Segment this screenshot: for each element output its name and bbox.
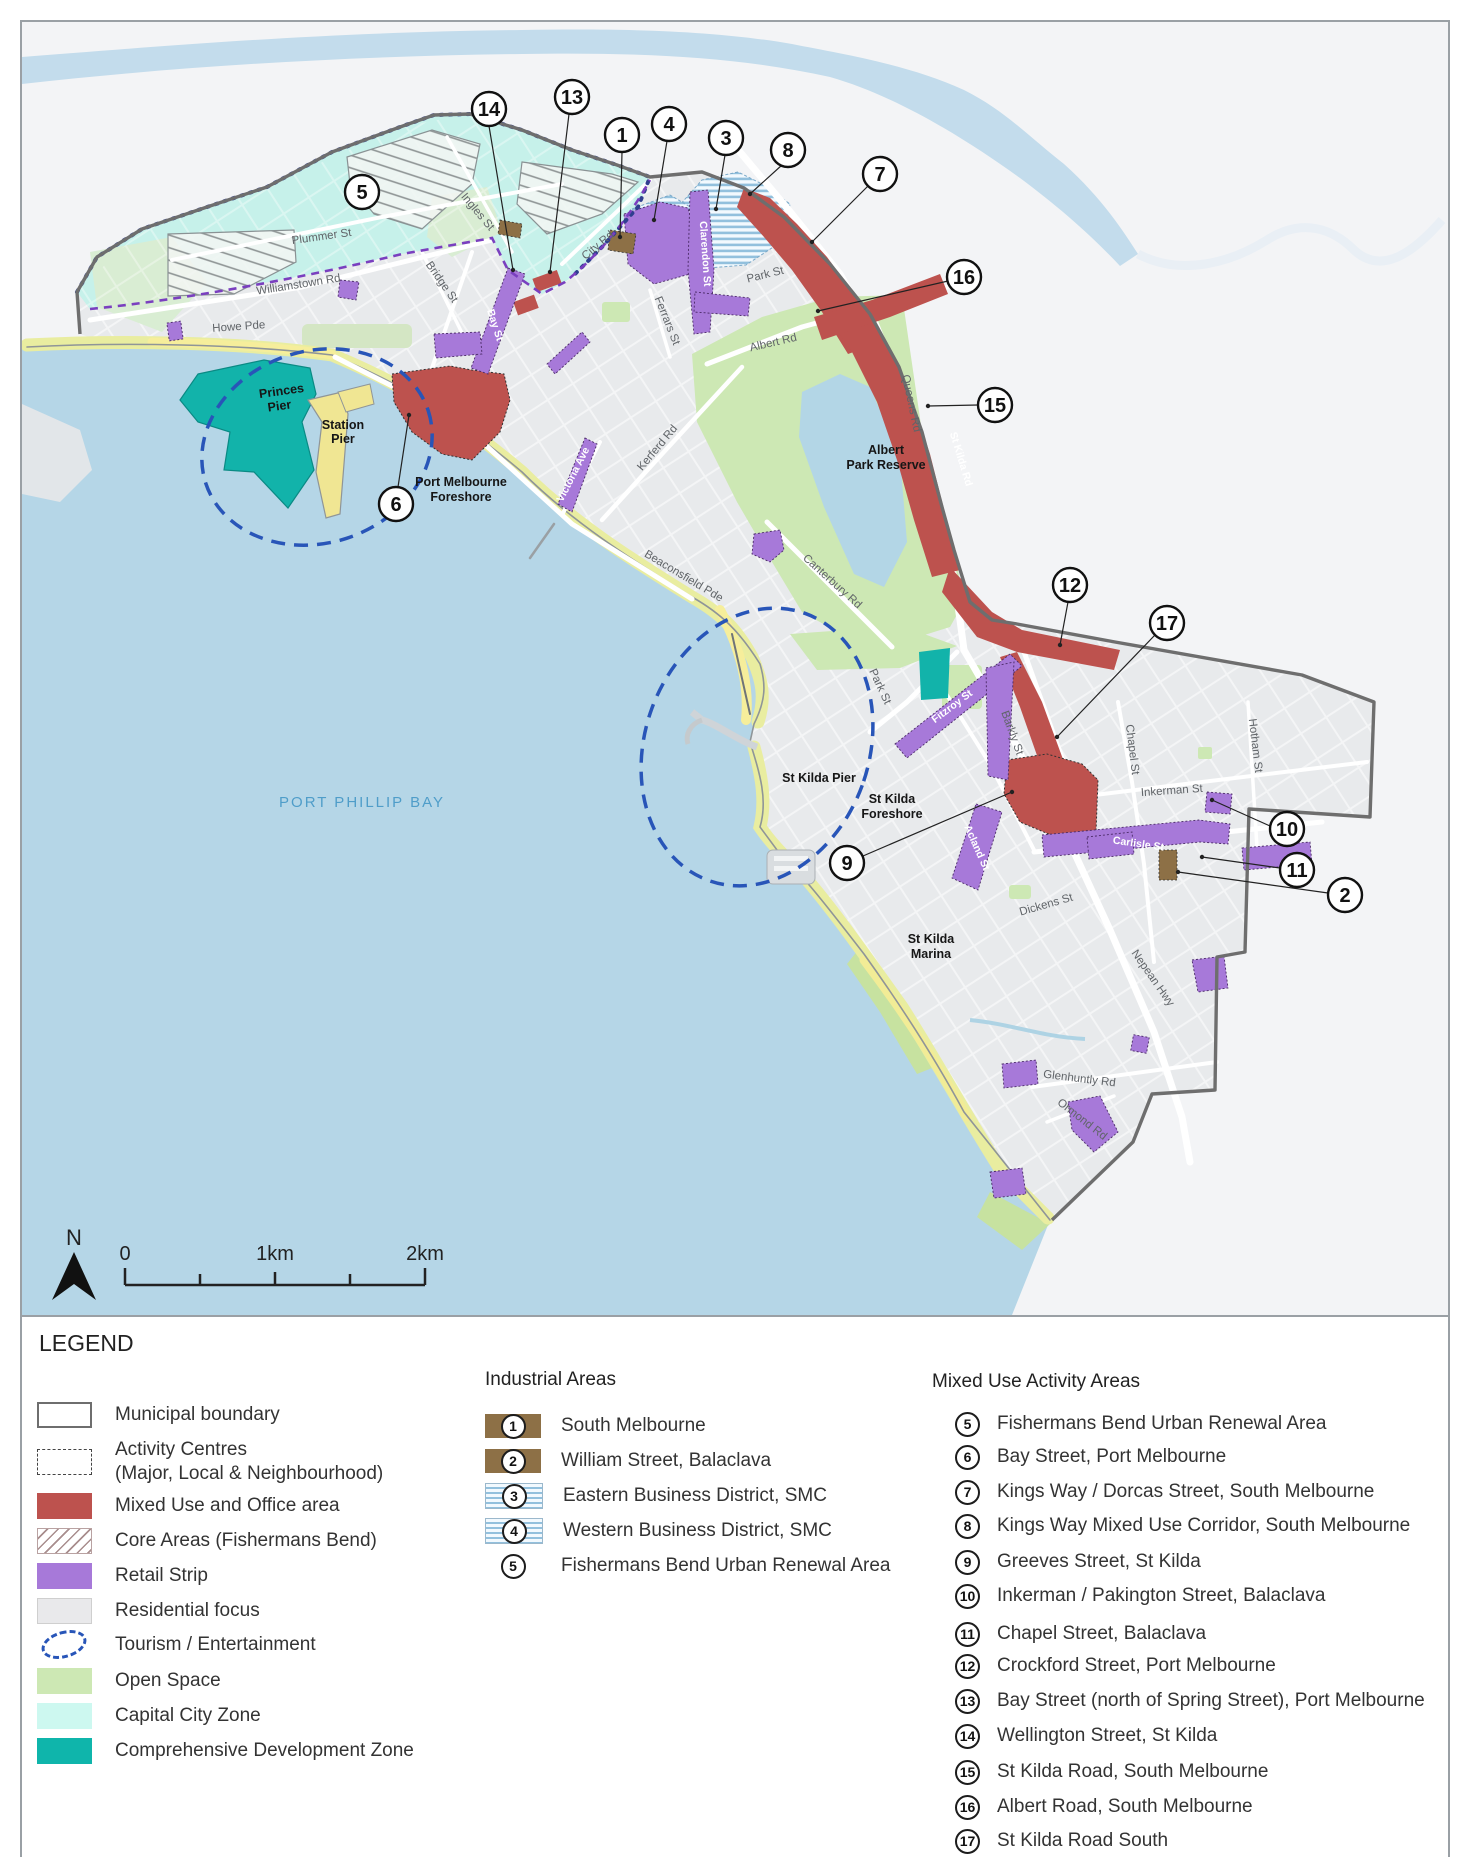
number-circle: 13 xyxy=(955,1689,980,1714)
svg-text:0: 0 xyxy=(119,1243,130,1265)
mixed-item-9: 9Greeves Street, St Kilda xyxy=(955,1549,1201,1575)
st-kilda-marina-structure xyxy=(767,850,815,884)
svg-text:5: 5 xyxy=(356,182,367,204)
mixed-item-11: 11Chapel Street, Balaclava xyxy=(955,1621,1206,1647)
svg-text:1km: 1km xyxy=(256,1243,294,1265)
callout-5: 5 xyxy=(345,175,379,209)
number-circle: 8 xyxy=(955,1514,980,1539)
number-circle: 14 xyxy=(955,1724,980,1749)
mixed-item-10: 10Inkerman / Pakington Street, Balaclava xyxy=(955,1583,1325,1609)
capital-city-swatch xyxy=(37,1703,92,1729)
svg-text:Park Reserve: Park Reserve xyxy=(846,458,925,472)
number-circle: 15 xyxy=(955,1760,980,1785)
number-circle: 2 xyxy=(501,1449,526,1474)
industrial-areas-title: Industrial Areas xyxy=(485,1369,616,1391)
svg-text:15: 15 xyxy=(984,395,1006,417)
legend-item-municipal-boundary: Municipal boundary xyxy=(37,1402,280,1428)
industrial-item-5: 5Fishermans Bend Urban Renewal Area xyxy=(485,1553,891,1579)
retail-strip-swatch xyxy=(37,1563,92,1589)
industrial-item-1: 1South Melbourne xyxy=(485,1413,706,1439)
legend: LEGEND Municipal boundary Activity Centr… xyxy=(22,1317,1448,1857)
label-st-kilda-marina: St Kilda Marina xyxy=(908,932,956,961)
legend-item-residential-focus: Residential focus xyxy=(37,1598,260,1624)
svg-text:N: N xyxy=(66,1225,82,1250)
industrial-swatch-brown: 1 xyxy=(485,1414,541,1438)
map-area: Plummer St Ingles St Bridge St Williamst… xyxy=(22,22,1448,1317)
comp-dev-st-kilda-triangle xyxy=(919,648,950,700)
mixed-item-5: 5Fishermans Bend Urban Renewal Area xyxy=(955,1411,1327,1437)
svg-text:Port Melbourne: Port Melbourne xyxy=(415,475,507,489)
number-circle: 3 xyxy=(502,1484,527,1509)
svg-text:14: 14 xyxy=(478,99,501,121)
tourism-swatch xyxy=(38,1625,90,1664)
svg-text:11: 11 xyxy=(1286,860,1307,882)
industrial-item-3: 3Eastern Business District, SMC xyxy=(485,1483,827,1509)
number-circle: 12 xyxy=(955,1654,980,1679)
number-circle: 10 xyxy=(955,1584,980,1609)
mixed-item-8: 8Kings Way Mixed Use Corridor, South Mel… xyxy=(955,1513,1410,1539)
legend-item-core-areas: Core Areas (Fishermans Bend) xyxy=(37,1528,377,1554)
number-circle: 6 xyxy=(955,1445,980,1470)
svg-text:3: 3 xyxy=(720,128,731,150)
svg-text:6: 6 xyxy=(390,494,401,516)
industrial-item-2: 2William Street, Balaclava xyxy=(485,1448,771,1474)
industrial-william-st-balaclava xyxy=(1159,850,1177,880)
legend-item-open-space: Open Space xyxy=(37,1668,221,1694)
mixed-item-12: 12Crockford Street, Port Melbourne xyxy=(955,1653,1276,1679)
svg-text:10: 10 xyxy=(1276,819,1298,841)
legend-item-tourism: Tourism / Entertainment xyxy=(37,1631,316,1658)
core-areas-swatch xyxy=(37,1528,92,1554)
open-space-swatch xyxy=(37,1668,92,1694)
svg-text:Foreshore: Foreshore xyxy=(861,807,922,821)
svg-text:9: 9 xyxy=(841,853,852,875)
svg-text:8: 8 xyxy=(782,140,793,162)
mixed-item-7: 7Kings Way / Dorcas Street, South Melbou… xyxy=(955,1479,1374,1505)
number-circle: 1 xyxy=(501,1414,526,1439)
legend-item-mixed-use: Mixed Use and Office area xyxy=(37,1493,340,1519)
comprehensive-dev-swatch xyxy=(37,1738,92,1764)
svg-text:2: 2 xyxy=(1339,885,1350,907)
mixed-item-16: 16Albert Road, South Melbourne xyxy=(955,1794,1253,1820)
svg-text:13: 13 xyxy=(561,87,583,109)
mixed-use-areas-title: Mixed Use Activity Areas xyxy=(932,1371,1140,1393)
mixed-item-6: 6Bay Street, Port Melbourne xyxy=(955,1444,1226,1470)
label-st-kilda-foreshore: St Kilda Foreshore xyxy=(861,792,922,821)
mixed-item-13: 13Bay Street (north of Spring Street), P… xyxy=(955,1688,1425,1714)
legend-title: LEGEND xyxy=(39,1330,134,1357)
number-circle: 9 xyxy=(955,1550,980,1575)
legend-item-comprehensive-dev: Comprehensive Development Zone xyxy=(37,1738,414,1764)
label-port-phillip-bay: PORT PHILLIP BAY xyxy=(279,794,445,811)
legend-item-capital-city-zone: Capital City Zone xyxy=(37,1703,261,1729)
mixed-item-17: 17St Kilda Road South xyxy=(955,1828,1168,1854)
number-circle: 5 xyxy=(955,1412,980,1437)
retail-glenhuntly-rd xyxy=(1002,1060,1038,1088)
residential-swatch xyxy=(37,1598,92,1624)
activity-centres-swatch xyxy=(37,1449,92,1475)
svg-text:7: 7 xyxy=(874,164,885,186)
map-canvas: Plummer St Ingles St Bridge St Williamst… xyxy=(22,22,1448,1315)
number-circle: 7 xyxy=(955,1480,980,1505)
mixed-use-swatch xyxy=(37,1493,92,1519)
svg-text:4: 4 xyxy=(663,114,675,136)
mixed-item-14: 14Wellington Street, St Kilda xyxy=(955,1723,1217,1749)
number-circle: 5 xyxy=(501,1554,526,1579)
number-circle: 4 xyxy=(502,1519,527,1544)
number-circle: 17 xyxy=(955,1829,980,1854)
svg-text:12: 12 xyxy=(1059,575,1081,597)
svg-text:St Kilda: St Kilda xyxy=(908,932,956,946)
number-circle: 11 xyxy=(955,1622,980,1647)
svg-text:Marina: Marina xyxy=(911,947,952,961)
svg-text:17: 17 xyxy=(1156,613,1178,635)
svg-text:Foreshore: Foreshore xyxy=(430,490,491,504)
svg-text:St Kilda: St Kilda xyxy=(869,792,917,806)
industrial-swatch-stripe: 3 xyxy=(485,1483,543,1509)
label-st-kilda-pier: St Kilda Pier xyxy=(782,771,856,785)
svg-text:Pier: Pier xyxy=(331,432,355,446)
legend-item-activity-centres: Activity Centres(Major, Local & Neighbou… xyxy=(37,1438,383,1486)
industrial-item-4: 4Western Business District, SMC xyxy=(485,1518,832,1544)
svg-text:2km: 2km xyxy=(406,1243,444,1265)
industrial-swatch-stripe: 4 xyxy=(485,1518,543,1544)
mixed-item-15: 15St Kilda Road, South Melbourne xyxy=(955,1759,1268,1785)
svg-text:Albert: Albert xyxy=(868,443,905,457)
svg-text:Station: Station xyxy=(322,418,364,432)
svg-text:1: 1 xyxy=(616,125,627,147)
number-circle: 16 xyxy=(955,1795,980,1820)
municipal-boundary-swatch xyxy=(37,1402,92,1428)
svg-text:16: 16 xyxy=(953,267,975,289)
page-frame: Plummer St Ingles St Bridge St Williamst… xyxy=(20,20,1450,1857)
industrial-swatch-brown: 2 xyxy=(485,1449,541,1473)
legend-item-retail-strip: Retail Strip xyxy=(37,1563,208,1589)
